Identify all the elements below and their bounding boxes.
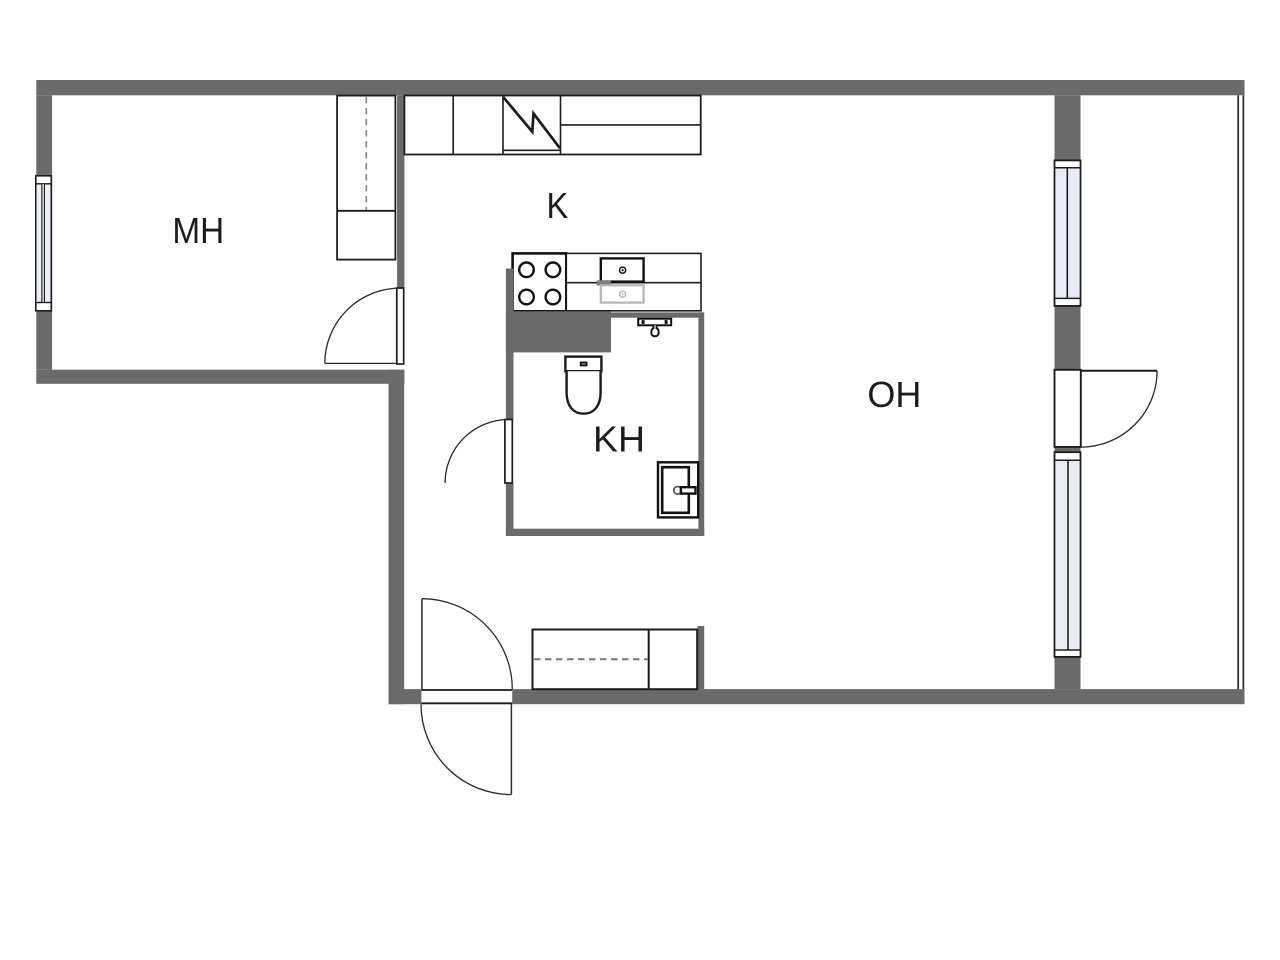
svg-text:K: K [547,185,569,226]
svg-text:OH: OH [867,374,921,415]
svg-text:KH: KH [593,419,645,460]
svg-text:MH: MH [172,210,224,251]
